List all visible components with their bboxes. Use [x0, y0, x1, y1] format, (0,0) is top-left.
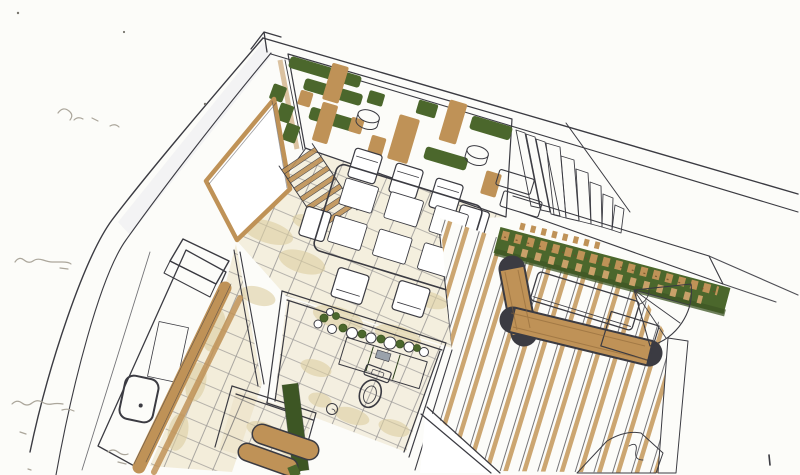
sketch-canvas: [0, 0, 800, 475]
stray-ink-mark: [769, 455, 770, 465]
sketch-drawing: [0, 0, 800, 475]
